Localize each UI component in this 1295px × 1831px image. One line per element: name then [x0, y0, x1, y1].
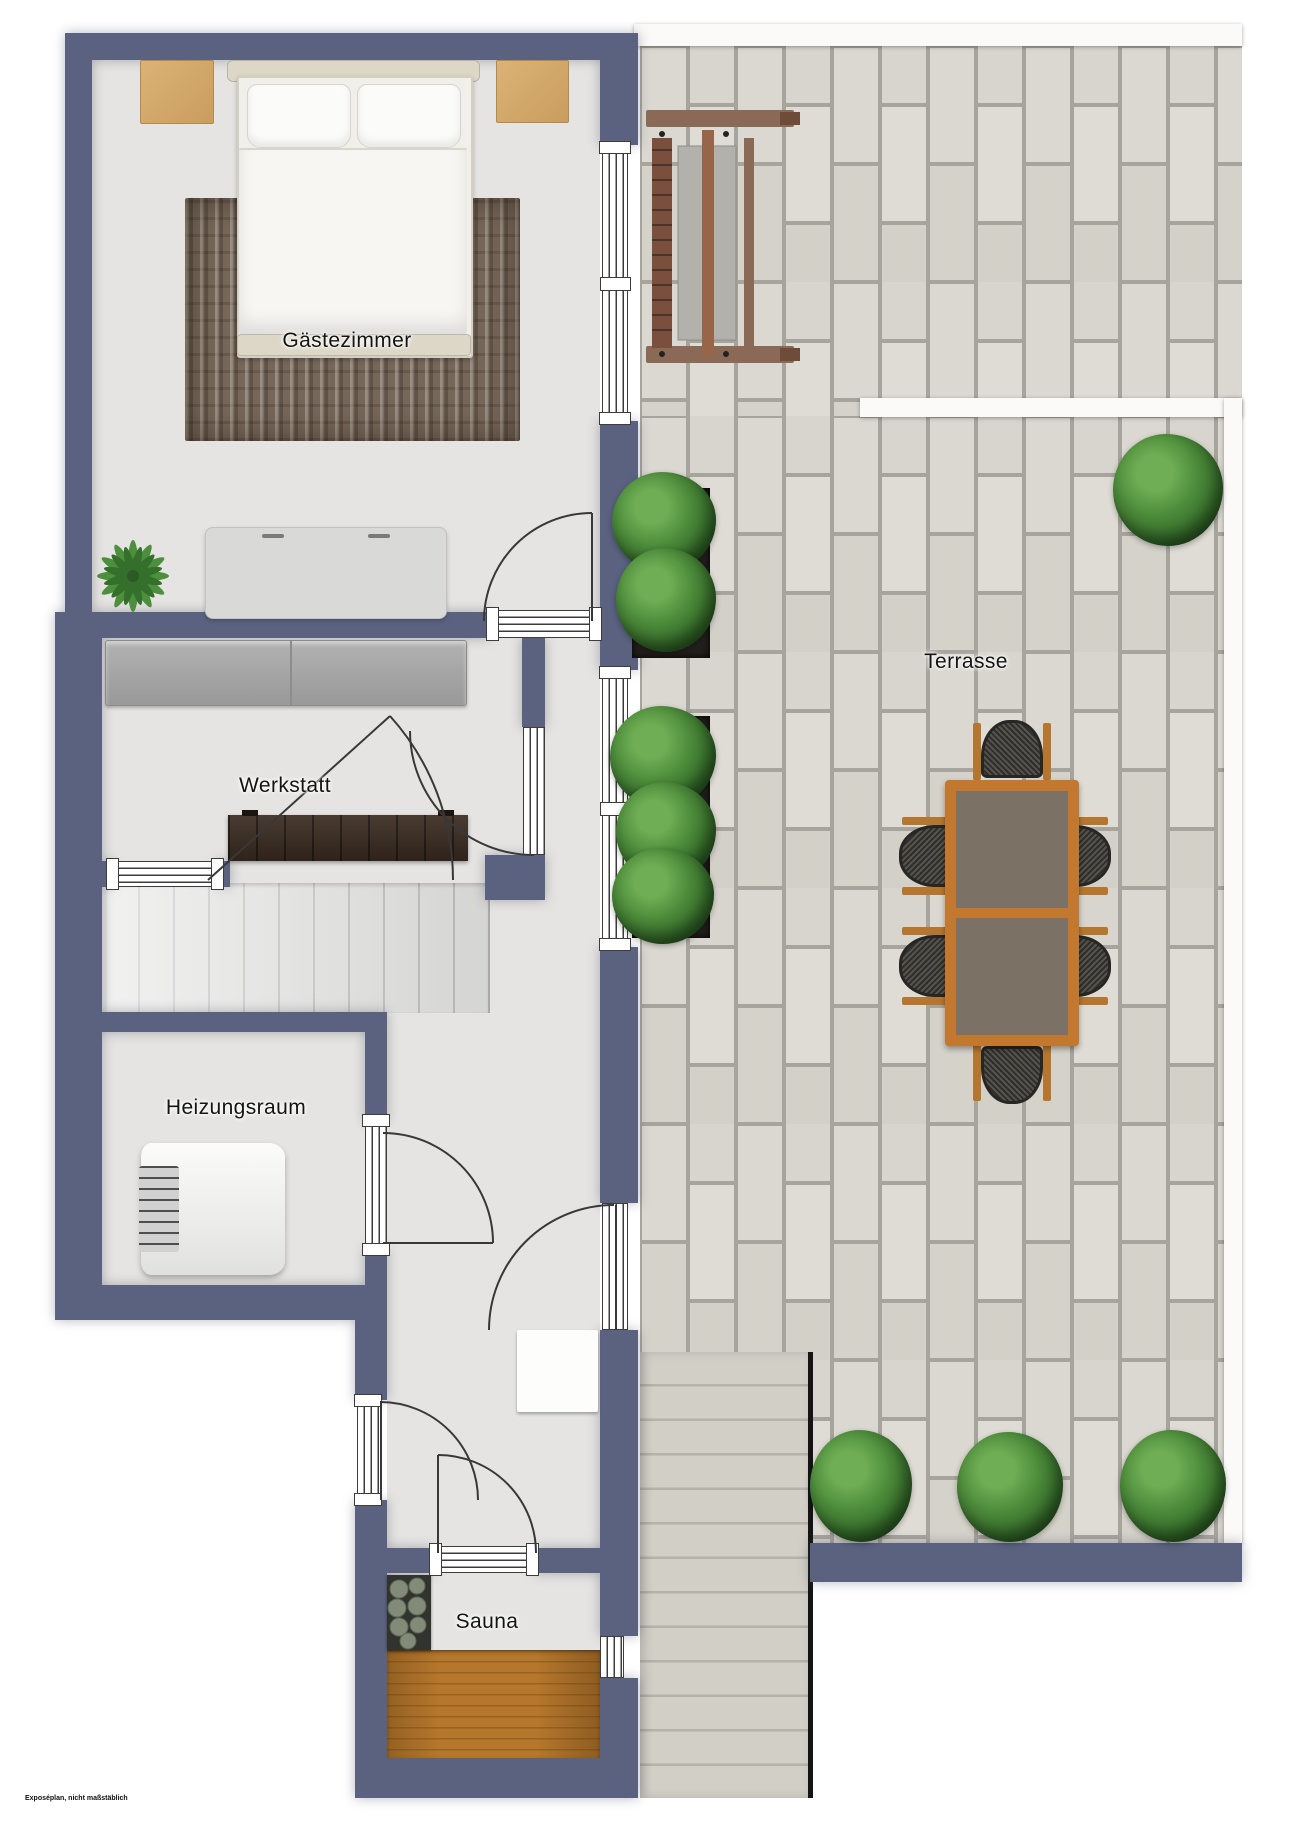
bush-terrace-corner [1113, 434, 1223, 546]
table-divider [956, 908, 1068, 918]
nightstand-right [496, 60, 569, 123]
wall-werkstatt-divider-top [522, 638, 545, 727]
wall-corridor-right-b [600, 947, 638, 1203]
sideboard-handle-right [368, 534, 390, 538]
door-sill-heizungsraum [365, 1118, 387, 1252]
workbench [228, 815, 468, 861]
wall-lower-left [55, 612, 102, 1320]
door-sill-werkstatt [523, 727, 545, 855]
wall-sauna-bottom [355, 1758, 638, 1798]
door-sill-sauna [433, 1546, 535, 1573]
sideboard [205, 527, 447, 619]
wall-sauna-top-right [535, 1548, 600, 1573]
planter-plant [612, 848, 714, 944]
wall-heizung-bottom [55, 1285, 387, 1320]
chair-mesh [981, 1046, 1043, 1104]
sauna-heater [387, 1575, 431, 1650]
pillow-left [247, 84, 351, 148]
wall-sauna-top-left [387, 1548, 433, 1573]
room-label-terrasse: Terrasse [924, 650, 1008, 674]
room-label-sauna: Sauna [456, 1610, 519, 1634]
wall-terrace-bottom [810, 1543, 1242, 1582]
window-sauna-east [600, 1636, 624, 1678]
chair-mesh [981, 720, 1043, 778]
planter-plant [616, 548, 716, 652]
sauna-wood-floor [387, 1650, 600, 1758]
pillow-right [357, 84, 461, 148]
wall-werkstatt-divider-bottom [485, 855, 545, 900]
bush-south-2 [957, 1432, 1063, 1542]
room-label-werkstatt: Werkstatt [239, 774, 331, 798]
bush-south-3 [1120, 1430, 1226, 1542]
wall-right-lower-b [600, 1678, 638, 1798]
door-sill-hall [357, 1398, 379, 1502]
wall-bedroom-right-top [600, 33, 638, 145]
nightstand-left [140, 60, 214, 124]
dining-chair-top [975, 720, 1049, 782]
door-sill-exit [602, 1203, 628, 1330]
wall-bedroom-left [65, 33, 92, 612]
utility-mat [517, 1330, 598, 1412]
wall-heizung-right-a [365, 1032, 387, 1122]
window-bedroom-east-mullion [600, 277, 631, 291]
room-label-gaestezimmer: Gästezimmer [282, 329, 411, 353]
boiler-panel [139, 1166, 179, 1252]
dining-chair-bottom [975, 1042, 1049, 1104]
duvet [239, 148, 467, 336]
wall-bedroom-top [65, 33, 638, 60]
watermark-text: Exposéplan, nicht maßstäblich [25, 1795, 128, 1802]
door-sill-stairs [110, 861, 220, 887]
dining-table [945, 780, 1079, 1046]
cabinet-divider [290, 641, 292, 705]
wall-hall-left-b [355, 1500, 387, 1556]
door-sill-bedroom [490, 610, 598, 638]
storage-cabinet [105, 640, 467, 706]
sideboard-handle-left [262, 534, 284, 538]
wall-heizung-top [102, 1012, 387, 1032]
floor-plan: Gästezimmer Werkstatt Heizungsraum Sauna… [0, 0, 1295, 1831]
room-label-heizungsraum: Heizungsraum [166, 1096, 306, 1120]
wall-hall-left-a [355, 1320, 387, 1400]
bush-south-1 [810, 1430, 912, 1542]
wall-right-lower-a [600, 1330, 638, 1636]
